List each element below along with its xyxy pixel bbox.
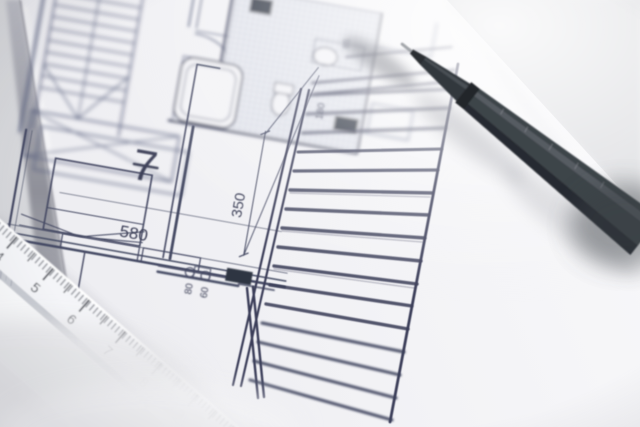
scene-photo: 7 580 350 80 60 — [0, 0, 640, 427]
photo-floorplan-scene: 7 580 350 80 60 — [0, 0, 640, 427]
vignette — [0, 0, 640, 427]
